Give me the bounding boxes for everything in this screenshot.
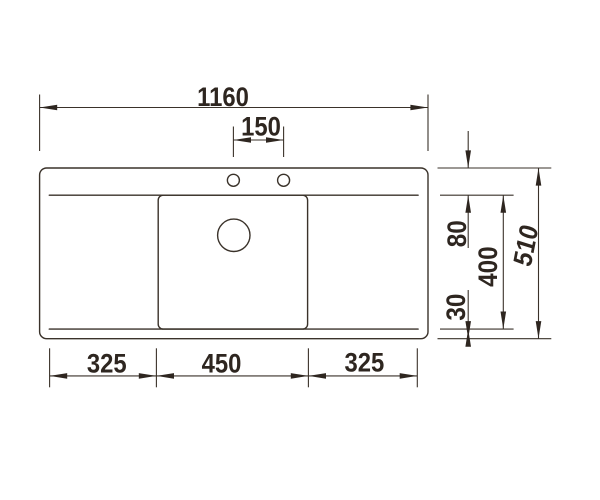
svg-text:325: 325 xyxy=(345,348,385,377)
svg-text:30: 30 xyxy=(442,294,471,321)
svg-text:150: 150 xyxy=(241,112,281,141)
svg-text:80: 80 xyxy=(443,220,472,247)
svg-text:400: 400 xyxy=(474,246,503,287)
svg-text:450: 450 xyxy=(202,349,242,378)
svg-text:1160: 1160 xyxy=(197,83,249,112)
svg-text:325: 325 xyxy=(87,349,127,378)
